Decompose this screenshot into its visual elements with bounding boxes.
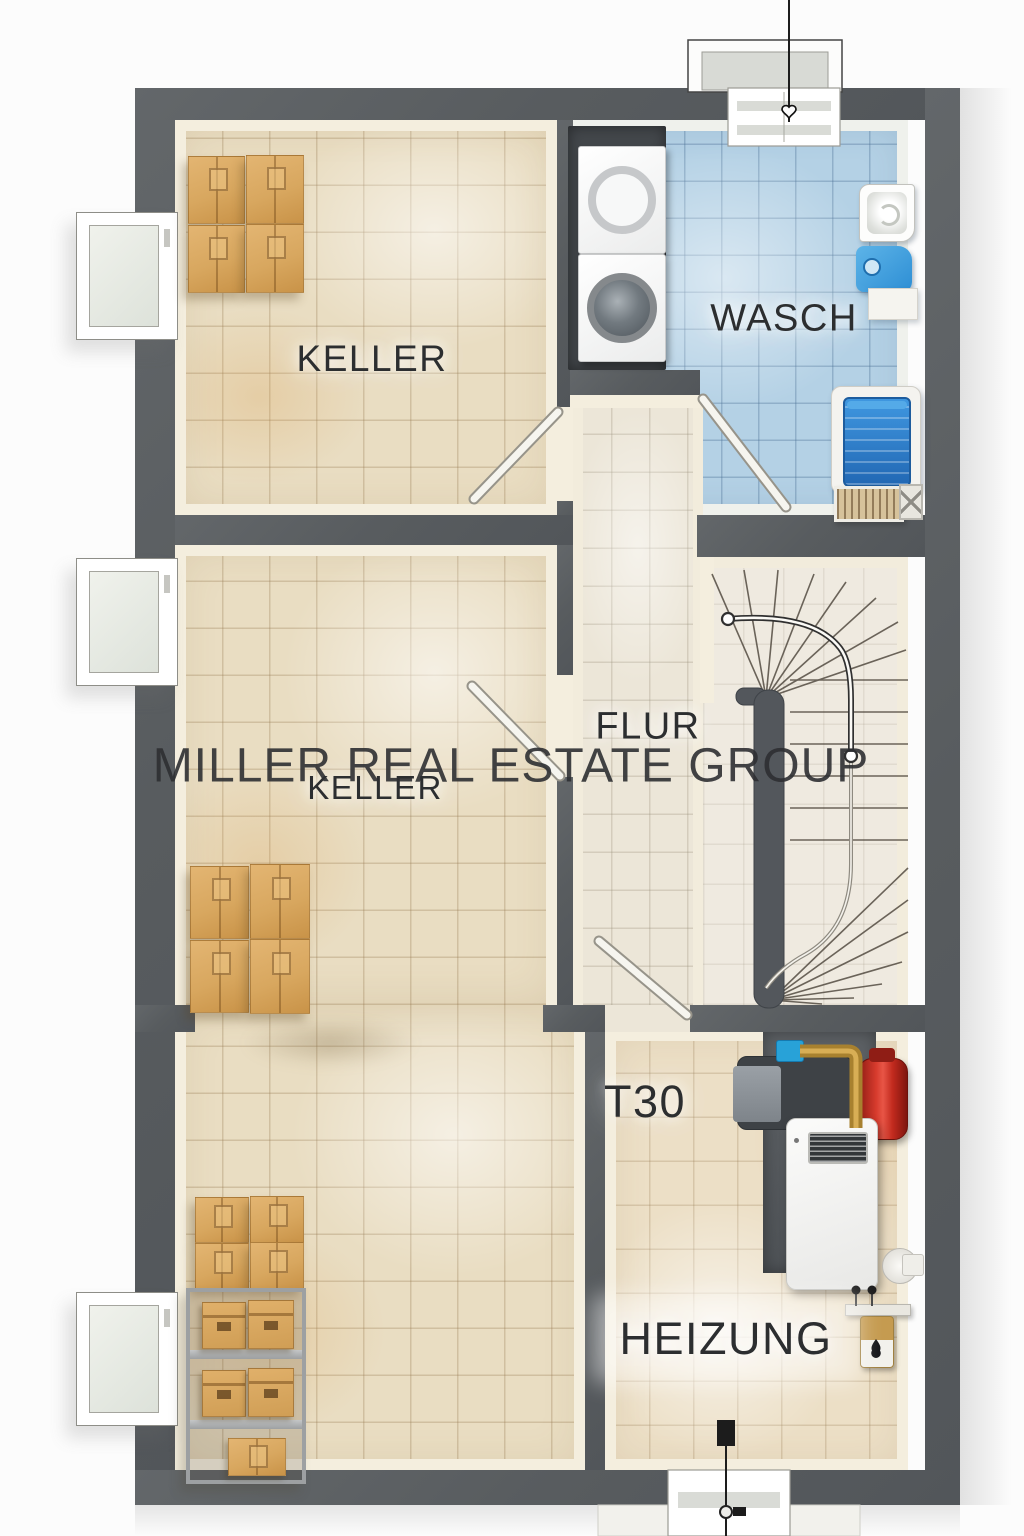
wall-outer-top <box>135 88 960 120</box>
wash-basin <box>859 184 915 242</box>
moving-box <box>228 1438 286 1476</box>
wall-stub-bottom-left <box>135 1005 195 1032</box>
cellar-window-3 <box>76 1292 178 1426</box>
moving-box <box>188 156 245 224</box>
window-handle <box>164 229 170 247</box>
stair-side-wall <box>700 557 714 703</box>
archive-box <box>202 1370 246 1417</box>
room-flur-floor <box>573 395 703 1005</box>
expansion-tank-cap <box>869 1048 895 1062</box>
washing-machine <box>578 254 666 362</box>
door-threshold-keller-top <box>557 407 573 501</box>
wall-junction-center <box>543 1005 605 1032</box>
window-handle <box>164 1309 170 1327</box>
moving-box <box>190 866 249 939</box>
flue-stub <box>902 1254 924 1276</box>
moving-box <box>190 940 249 1013</box>
wall-heizung-top <box>690 1005 925 1032</box>
storage-rack <box>186 1288 306 1484</box>
wall-keller-divider <box>175 515 573 545</box>
floor-shadow-smudge <box>205 1008 455 1078</box>
window-handle <box>164 575 170 593</box>
boiler-screw-icon <box>794 1138 799 1143</box>
room-label-keller-top: KELLER <box>297 338 448 380</box>
moving-box <box>188 225 245 293</box>
moving-box <box>246 155 304 224</box>
window-pane <box>89 571 159 673</box>
room-label-wasch: WASCH <box>710 298 858 341</box>
archive-box <box>202 1302 246 1349</box>
dryer <box>578 146 666 254</box>
wall-outer-right <box>925 88 960 1505</box>
moving-box <box>250 1242 304 1289</box>
archive-box <box>248 1368 294 1417</box>
washer-drum-icon <box>587 273 657 343</box>
exterior-shadow-right <box>960 88 1012 1505</box>
watermark: MILLER REAL ESTATE GROUP <box>153 739 870 794</box>
moving-box <box>250 1196 304 1243</box>
exterior-shadow-bottom <box>135 1505 960 1536</box>
floor-plan: KELLER WASCH FLUR KELLER T30 HEIZUNG MIL… <box>0 0 1024 1536</box>
control-box <box>733 1066 781 1122</box>
wall-face-wasch-door <box>570 395 700 408</box>
valve-blue-icon <box>776 1040 804 1062</box>
cellar-window-2 <box>76 558 178 686</box>
wall-keller-flur-lower2 <box>557 775 573 1005</box>
pipe-bracket <box>845 1304 911 1316</box>
room-label-heizung: HEIZUNG <box>610 1312 843 1366</box>
moving-box <box>195 1197 249 1243</box>
laundry-tub-basin <box>843 397 911 487</box>
window-pane <box>89 1305 159 1413</box>
moving-box <box>246 224 304 293</box>
wall-keller-flur-lower1 <box>557 545 573 675</box>
door-threshold-heizung <box>605 1005 690 1032</box>
archive-box <box>248 1300 294 1349</box>
window-pane <box>89 225 159 327</box>
boiler-vent-grille-icon <box>808 1132 868 1164</box>
moving-box <box>250 939 310 1014</box>
detergent-jug <box>856 246 912 292</box>
utility-shelf <box>868 288 918 320</box>
wall-keller-heizung <box>585 1032 605 1470</box>
fire-door-label: T30 <box>604 1076 686 1128</box>
moving-box <box>250 864 310 939</box>
rack-shelf <box>190 1420 302 1429</box>
water-heater <box>860 1316 894 1368</box>
rack-shelf <box>190 1350 302 1359</box>
moving-box <box>195 1243 249 1289</box>
wall-wasch-flur <box>570 370 700 395</box>
drain-tile-icon <box>899 484 923 520</box>
dryer-drum-icon <box>588 166 656 234</box>
washboard <box>834 486 904 522</box>
cellar-window-1 <box>76 212 178 340</box>
